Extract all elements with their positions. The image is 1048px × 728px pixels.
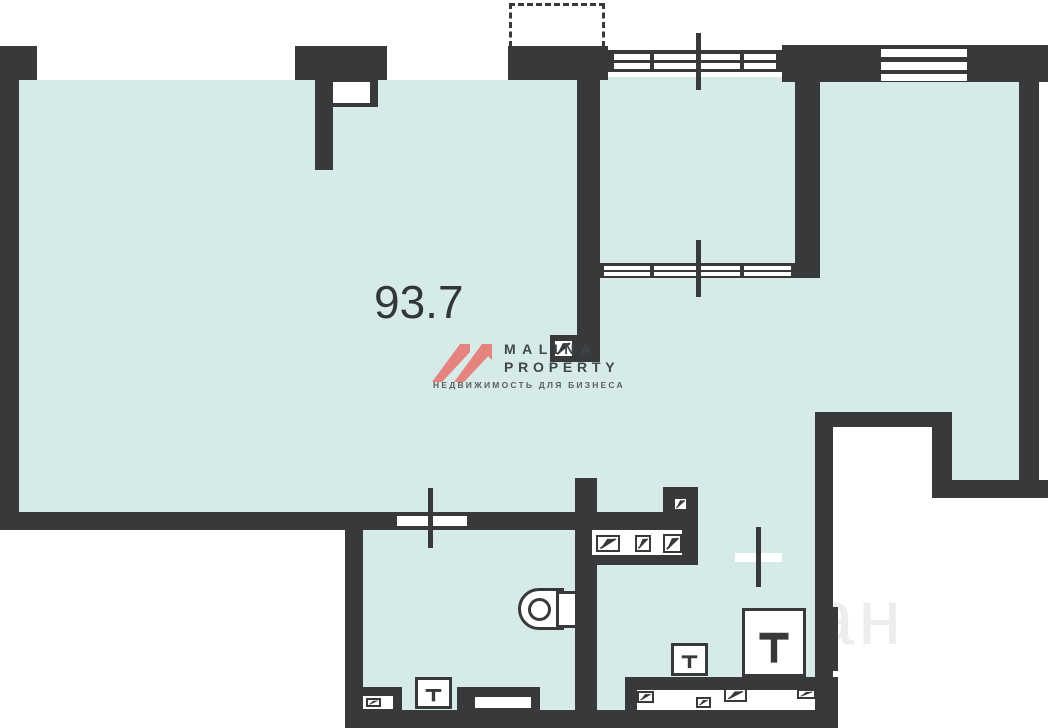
floor-plan: план 93.7 MALINA PROPERTY НЕДВИЖИМОСТЬ Д… bbox=[0, 0, 1048, 728]
sink-lower-right-large bbox=[742, 608, 806, 677]
cabinet-hatch-1 bbox=[596, 535, 620, 552]
sink-wc bbox=[415, 677, 452, 709]
window2-strip-1 bbox=[387, 50, 508, 57]
fixture-row-end-post bbox=[682, 530, 698, 565]
main-hall-floor bbox=[19, 80, 577, 512]
window1-strip-2 bbox=[37, 61, 295, 68]
locker-strip-stub bbox=[625, 690, 637, 710]
window2-strip-3 bbox=[387, 72, 508, 79]
lower-right-wall bbox=[815, 412, 833, 710]
wc-cabinet-hatch bbox=[366, 698, 381, 707]
window3-strip-3 bbox=[881, 74, 967, 81]
balcony-dashed-outline bbox=[509, 3, 605, 47]
fixture-row-bottom-wall bbox=[588, 555, 682, 565]
top-wall-balcony-base bbox=[508, 46, 608, 80]
top-glazing-mullion-1 bbox=[650, 50, 654, 72]
right-room-floor bbox=[820, 82, 1019, 412]
window-axis-wc bbox=[428, 488, 433, 548]
room-area-label: 93.7 bbox=[374, 275, 464, 329]
pillar-notch bbox=[333, 82, 370, 103]
lower-left-outer-wall bbox=[345, 530, 363, 710]
window3-strip-1 bbox=[881, 49, 967, 57]
left-outer-wall bbox=[0, 46, 19, 530]
right-column-floor bbox=[950, 412, 1019, 482]
cabinet-hatch-3 bbox=[663, 534, 682, 553]
locker-hatch-3 bbox=[724, 688, 747, 702]
window3-strip-2 bbox=[881, 62, 967, 70]
window-axis-middle bbox=[696, 240, 701, 297]
top-glazing-post-left bbox=[608, 50, 614, 72]
middle-glazing-mullion-2 bbox=[740, 263, 744, 278]
cabinet-hatch-2 bbox=[635, 535, 651, 552]
top-glazing-slot-2 bbox=[612, 63, 778, 69]
toilet-cistern bbox=[556, 591, 578, 628]
lower-right-wall-corner bbox=[833, 677, 838, 710]
duct-hatch-doorway bbox=[673, 497, 688, 511]
locker-hatch-1 bbox=[637, 691, 654, 703]
top-glazing-slot-1 bbox=[612, 54, 778, 60]
window-axis-top bbox=[696, 33, 701, 90]
window2-strip-2 bbox=[387, 61, 508, 68]
window-axis-lower-right bbox=[756, 527, 761, 587]
bottom-outer-wall bbox=[345, 710, 838, 728]
lower-right-wall-ledge bbox=[833, 607, 838, 671]
pillar-leg bbox=[315, 80, 333, 170]
right-outer-wall bbox=[1019, 82, 1039, 498]
window1-strip-1 bbox=[37, 50, 295, 57]
wc-right-wall bbox=[575, 478, 597, 710]
window1-strip-3 bbox=[37, 72, 295, 79]
locker-hatch-2 bbox=[696, 697, 711, 708]
top-glazing-mullion-2 bbox=[740, 50, 744, 72]
logo-title-line1: MALINA bbox=[504, 341, 597, 357]
middle-room-right-wall bbox=[795, 77, 820, 278]
top-wall-pier bbox=[295, 46, 387, 80]
top-wall-corner bbox=[0, 46, 37, 80]
middle-room-left-wall bbox=[577, 77, 600, 362]
notch-wall-bottom bbox=[943, 480, 1048, 498]
top-glazing-post-right bbox=[776, 50, 782, 72]
wc-counter-inset bbox=[475, 697, 531, 708]
logo-tagline: НЕДВИЖИМОСТЬ ДЛЯ БИЗНЕСА bbox=[433, 380, 625, 390]
toilet-bowl-circle bbox=[528, 598, 551, 621]
logo-title-line2: PROPERTY bbox=[504, 359, 619, 375]
middle-glazing-mullion-1 bbox=[650, 263, 654, 278]
notch-wall-horizontal bbox=[818, 412, 950, 427]
sink-lower-right-small bbox=[671, 643, 708, 676]
locker-hatch-4 bbox=[797, 689, 816, 699]
logo-mark-icon bbox=[432, 338, 496, 382]
